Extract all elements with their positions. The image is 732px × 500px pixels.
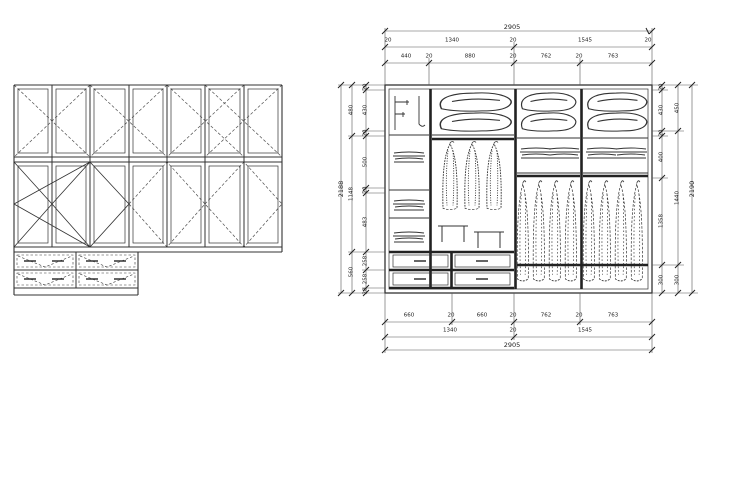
internal-elevation <box>385 85 652 293</box>
hook-panel-icon <box>395 96 425 130</box>
pillow-icon <box>588 113 647 131</box>
dim-label: 1148 <box>349 187 355 201</box>
dim-label: 2190 <box>689 181 696 198</box>
dim-label: 2905 <box>504 342 521 349</box>
pillow-icon <box>522 93 576 111</box>
dim-label: 20 <box>510 38 517 44</box>
dim-label: 20 <box>510 54 517 60</box>
folded-clothes-icon <box>615 148 647 158</box>
pillow-icon <box>440 93 511 111</box>
dim-label: 20 <box>645 38 652 44</box>
cad-drawing-page: 2905 20 1340 20 1545 20 440 20 880 20 76… <box>0 0 732 500</box>
dim-label: 763 <box>608 313 619 319</box>
dim-label: 1358 <box>659 214 665 228</box>
dim-label: 450 <box>675 103 681 114</box>
dim-label: 1440 <box>675 191 681 205</box>
dim-label: 20 <box>659 130 665 137</box>
dim-label: 880 <box>465 54 476 60</box>
dim-label: 430 <box>363 105 369 116</box>
dim-label: 483 <box>363 217 369 228</box>
folded-clothes-icon <box>586 148 618 158</box>
dim-label: 660 <box>477 313 488 319</box>
front-elevation <box>14 85 282 295</box>
dim-label: 560 <box>349 267 355 278</box>
dim-label: 400 <box>659 152 665 163</box>
dim-label: 430 <box>659 105 665 116</box>
dim-label: 2905 <box>504 24 521 31</box>
folded-clothes-icon <box>520 148 552 158</box>
dim-label: 762 <box>541 313 552 319</box>
dim-label: 300 <box>659 275 665 286</box>
dim-label: 763 <box>608 54 619 60</box>
dim-label: 20 <box>448 313 455 319</box>
pillow-icon <box>440 113 511 131</box>
dim-label: 1545 <box>578 328 592 334</box>
dim-label: 20 <box>363 130 369 137</box>
dim-label: 762 <box>541 54 552 60</box>
dim-label: 20 <box>363 187 369 194</box>
dim-label: 20 <box>576 313 583 319</box>
dim-label: 20 <box>576 54 583 60</box>
dim-label: 480 <box>349 105 355 116</box>
dim-label: 258 <box>363 256 369 267</box>
dim-label: 660 <box>404 313 415 319</box>
dim-label: 20 <box>426 54 433 60</box>
folded-clothes-icon <box>393 152 425 162</box>
folded-clothes-icon <box>548 148 580 158</box>
dim-label: 1340 <box>443 328 457 334</box>
dim-label: 20 <box>659 84 665 91</box>
drawing-canvas <box>0 0 732 500</box>
dim-label: 20 <box>510 328 517 334</box>
dim-label: 258 <box>363 274 369 285</box>
dim-label: 500 <box>363 157 369 168</box>
dim-label: 1340 <box>445 38 459 44</box>
shelf-bracket-icon <box>438 226 468 242</box>
dim-label: 440 <box>401 54 412 60</box>
door-swing-solid <box>14 162 129 247</box>
dim-label: 20 <box>385 38 392 44</box>
dim-label: 1545 <box>578 38 592 44</box>
dim-label: 2188 <box>338 181 345 198</box>
hanging-garment-icon <box>443 142 457 210</box>
dim-label: 300 <box>675 275 681 286</box>
hanging-garment-icon <box>487 142 501 210</box>
folded-clothes-icon <box>393 232 425 242</box>
dim-label: 20 <box>363 84 369 91</box>
pillow-icon <box>522 113 576 131</box>
hanging-garment-icon <box>465 142 479 210</box>
folded-clothes-icon <box>393 200 425 210</box>
dim-label: 20 <box>363 288 369 295</box>
shelf-bracket-icon <box>474 232 504 248</box>
dim-label: 20 <box>510 313 517 319</box>
pillow-icon <box>588 93 647 111</box>
front-drawers <box>14 252 138 295</box>
